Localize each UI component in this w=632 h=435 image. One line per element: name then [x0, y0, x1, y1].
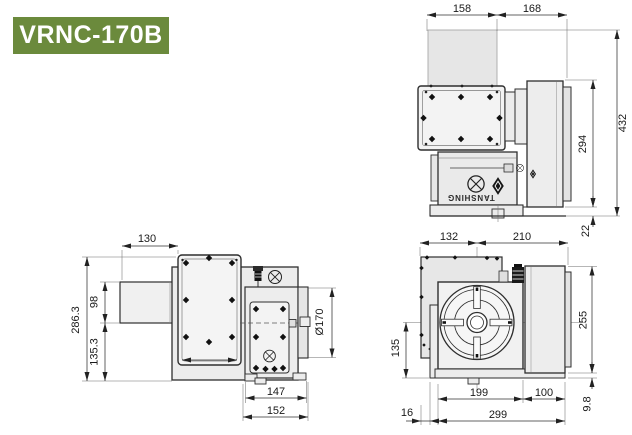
breather-body	[255, 271, 262, 281]
edge-dot	[430, 85, 433, 88]
dim-label-147: 147	[267, 386, 285, 398]
pipe-fitting	[504, 164, 513, 172]
edge-dot	[461, 85, 464, 88]
corner-dot	[496, 91, 499, 94]
terminal-block	[499, 271, 508, 282]
motor-end-cap-front	[565, 272, 571, 367]
dim-label-9-8: 9.8	[582, 396, 594, 411]
dim-label-135: 135	[390, 339, 402, 357]
mounting-foot	[293, 373, 306, 380]
slot-stop	[476, 354, 479, 358]
dim-label-168: 168	[523, 3, 541, 15]
slot-stop	[508, 321, 512, 324]
dim-label-299: 299	[489, 409, 507, 421]
plan-view: 130 286.3 98 135.3 Ø170 147 152	[70, 233, 336, 421]
table-plate-plan	[178, 255, 241, 365]
base-key-tab	[255, 378, 266, 384]
dim-label-152: 152	[267, 405, 285, 417]
dim-label-130: 130	[138, 233, 156, 245]
dim-label-294: 294	[577, 135, 589, 153]
dim-label-132: 132	[440, 231, 458, 243]
spacer-block	[505, 92, 515, 141]
dim-label-199: 199	[470, 387, 488, 399]
motor-housing-side	[527, 81, 563, 207]
dim-label-22: 22	[580, 225, 592, 237]
faceplate-hub-stub	[300, 317, 310, 327]
left-clamp-strip	[430, 305, 438, 378]
corner-dot	[181, 259, 183, 261]
base-side	[430, 205, 523, 216]
corner-dot	[425, 91, 428, 94]
corner-dot	[235, 259, 237, 261]
body-left-step	[431, 155, 438, 201]
motor-end-cap-side	[563, 87, 571, 201]
corner-dot	[425, 143, 428, 146]
side-view: TANSHING 158 168 432 294 22	[418, 3, 629, 237]
brand-logo-text: TANSHING	[447, 193, 495, 202]
breather-cap	[253, 266, 263, 271]
drawing-canvas: VRNC-170B	[0, 0, 632, 435]
front-view: 132 210 255 135 199 100 16 299 9.8	[390, 231, 597, 425]
technical-drawing: TANSHING 158 168 432 294 22	[0, 0, 632, 435]
corner-dot	[496, 143, 499, 146]
motor-block-plan	[120, 282, 178, 323]
dim-label-210: 210	[513, 231, 531, 243]
dim-label-158: 158	[453, 3, 471, 15]
base-key-tab	[468, 378, 479, 384]
spacer-flange	[515, 89, 527, 144]
dim-label-100: 100	[535, 387, 553, 399]
slot-stop	[476, 288, 479, 292]
slot-stop	[443, 321, 447, 324]
dim-label-16: 16	[401, 407, 413, 419]
center-screw-stub	[289, 320, 296, 328]
dim-label-286-3: 286.3	[70, 306, 82, 334]
dim-label-432: 432	[617, 114, 629, 132]
dim-label-dia170: Ø170	[314, 309, 326, 336]
edge-dot	[491, 85, 494, 88]
dim-label-135-3: 135.3	[89, 338, 101, 366]
cable-gland	[512, 264, 524, 283]
dim-label-255: 255	[578, 311, 590, 329]
faceplate-front	[440, 286, 514, 360]
center-bore-circle	[467, 313, 487, 333]
tilted-table-phantom	[428, 30, 497, 86]
gland-pins	[514, 264, 522, 267]
dim-label-98: 98	[89, 296, 101, 308]
